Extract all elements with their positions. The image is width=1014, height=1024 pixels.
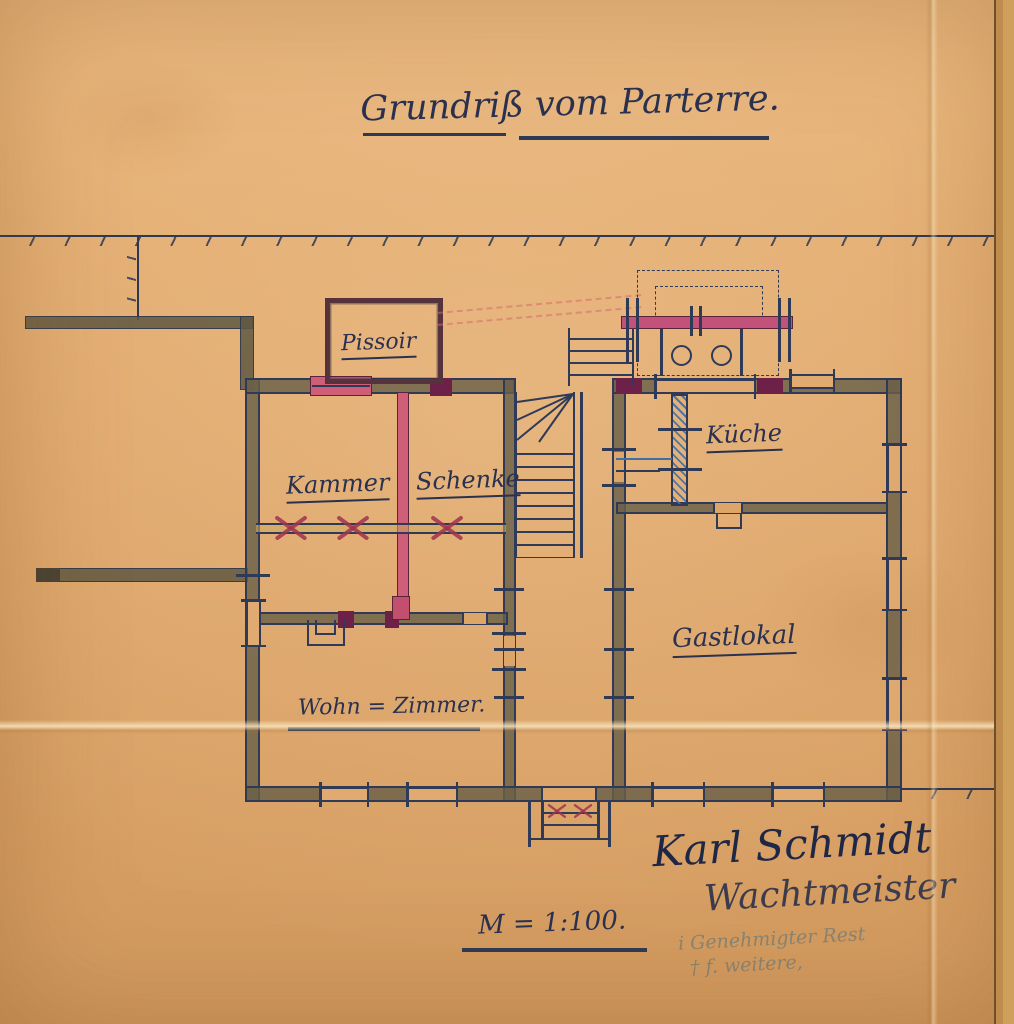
wohnzimmer-underline: [288, 727, 480, 731]
privy-pink-beam: [621, 316, 793, 329]
interior-door-opening: [462, 613, 488, 624]
pink-insert-line: [312, 385, 370, 387]
room-label-schenke-text: Schenke: [416, 464, 521, 500]
room-label-kueche: Küche: [706, 419, 783, 450]
room-label-kueche-text: Küche: [706, 419, 783, 454]
wall-tick: [604, 648, 634, 651]
window-symbol: [772, 787, 824, 802]
privy-seat-circle: [671, 345, 692, 366]
window-symbol: [887, 678, 902, 730]
wall-tick: [604, 696, 634, 699]
room-label-pissoir: Pissoir: [341, 329, 417, 357]
window-symbol: [407, 787, 457, 802]
room-label-schenke: Schenke: [416, 464, 521, 496]
privy-divider: [660, 329, 663, 376]
stair-winder-fan: [517, 392, 577, 442]
chimney-tick: [658, 428, 702, 431]
privy-divider: [740, 329, 743, 376]
door-jamb-tick: [492, 632, 526, 635]
title-underline-right: [519, 136, 769, 140]
door-jamb-tick: [602, 448, 636, 451]
wall-tick: [236, 574, 270, 577]
thin-line: [616, 470, 660, 472]
door-jamb-tick: [492, 668, 526, 671]
signature-name: Karl Schmidt: [651, 813, 933, 877]
maroon-wall-blob: [757, 378, 783, 394]
room-label-wohnzimmer: Wohn = Zimmer.: [298, 692, 486, 720]
window-symbol: [246, 600, 261, 646]
window-symbol: [887, 444, 902, 492]
window-symbol: [320, 787, 368, 802]
room-label-kammer: Kammer: [286, 468, 390, 500]
wall-kueche-gastlokal: [616, 502, 888, 514]
stair-outer-rail: [580, 392, 583, 558]
x-mark-entrance: [574, 802, 591, 819]
x-mark: [276, 513, 306, 543]
door-jamb-tick: [602, 484, 636, 487]
pencil-note-line2: † f. weitere,: [690, 951, 804, 979]
hall-door-opening: [504, 636, 515, 666]
window-symbol: [790, 374, 834, 389]
stoop-tread: [541, 824, 599, 826]
paper-stain: [60, 60, 240, 180]
wall-tick: [604, 588, 634, 591]
scanned-floor-plan-sheet: Grundriß vom Parterre.: [0, 0, 1014, 1024]
door-threshold-box: [716, 513, 742, 529]
room-label-gastlokal: Gastlokal: [672, 620, 797, 654]
room-label-wohnzimmer-text: Wohn = Zimmer.: [298, 692, 486, 720]
privy-post: [778, 298, 781, 362]
title-underline-left: [363, 133, 506, 136]
exterior-steps-top: [568, 328, 634, 386]
boundary-branch-hatching: [127, 240, 136, 318]
privy-post-center: [699, 306, 702, 336]
privy-seat-circle: [711, 345, 732, 366]
x-mark-entrance: [548, 802, 565, 819]
exterior-wall-left: [245, 378, 260, 802]
stoop-tread: [528, 838, 610, 840]
wall-tick: [494, 648, 524, 651]
red-dashed-line: [437, 294, 641, 314]
pencil-note-line1: i Genehmigter Rest: [678, 923, 866, 955]
drawing-title: Grundriß vom Parterre.: [360, 79, 781, 130]
kueche-door-opening: [614, 452, 624, 482]
privy-post-center: [690, 306, 693, 336]
boundary-hatching-top: [0, 237, 1014, 246]
scale-underline: [462, 948, 647, 952]
boundary-branch-line: [137, 237, 139, 320]
gastlokal-door-opening: [713, 503, 743, 513]
scale-label: M = 1:100.: [478, 905, 627, 940]
signature-title: Wachtmeister: [703, 865, 956, 919]
staircase: [515, 392, 575, 558]
room-label-gastlokal-text: Gastlokal: [672, 620, 797, 658]
wall-kammer-schenke-pink: [397, 392, 409, 620]
yard-wall-upper: [25, 316, 253, 329]
entrance-door-opening: [541, 788, 597, 800]
wall-tick: [494, 696, 524, 699]
stair-treads: [517, 442, 573, 558]
privy-post: [788, 298, 791, 362]
room-label-pissoir-text: Pissoir: [341, 329, 417, 361]
wall-tick: [494, 588, 524, 591]
yard-wall-lower: [36, 568, 248, 582]
window-symbol: [887, 558, 902, 610]
chimney-tick: [658, 468, 702, 471]
privy-post: [636, 298, 639, 362]
stoop-rail-inner: [597, 800, 600, 840]
window-symbol: [652, 787, 704, 802]
chimney-hatched: [671, 394, 688, 506]
stoop-rail-inner: [541, 800, 544, 840]
room-label-kammer-text: Kammer: [286, 468, 390, 504]
x-mark: [338, 513, 368, 543]
paper-edge-band: [994, 0, 1014, 1024]
pink-wall-foot: [392, 596, 410, 620]
yard-wall-end-blob: [36, 568, 60, 582]
boundary-hatching-bottom-right: [902, 790, 1014, 799]
window-symbol: [655, 379, 755, 394]
stove-fixture-inner: [315, 620, 336, 635]
blue-line: [616, 458, 672, 460]
x-mark: [432, 513, 462, 543]
